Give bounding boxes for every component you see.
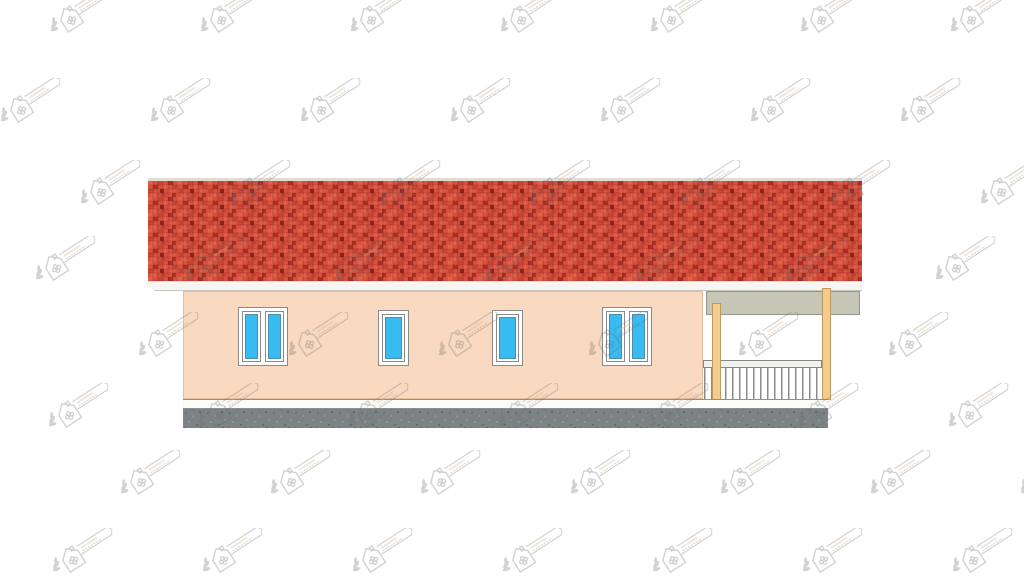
house-leaf-logo-watermark xyxy=(110,450,190,502)
house-leaf-logo-watermark xyxy=(792,528,872,576)
house-leaf-logo-watermark xyxy=(490,0,570,40)
fascia-board xyxy=(148,281,862,291)
porch-ceiling-beam xyxy=(706,291,860,315)
house-leaf-logo-watermark xyxy=(342,528,422,576)
house-leaf-logo-watermark xyxy=(140,78,220,130)
house-leaf-logo-watermark xyxy=(890,78,970,130)
double-window-right xyxy=(602,307,652,366)
house-leaf-logo-watermark xyxy=(25,236,105,288)
house-leaf-logo-watermark xyxy=(260,450,340,502)
window-glass xyxy=(632,314,645,359)
house-leaf-logo-watermark xyxy=(710,450,790,502)
house-leaf-logo-watermark xyxy=(190,0,270,40)
plinth-band xyxy=(183,399,828,409)
house-leaf-logo-watermark xyxy=(340,0,420,40)
house-leaf-logo-watermark xyxy=(970,160,1024,212)
house-leaf-logo-watermark xyxy=(590,78,670,130)
window-glass xyxy=(245,314,258,359)
house-leaf-logo-watermark xyxy=(642,528,722,576)
house-leaf-logo-watermark xyxy=(0,78,70,130)
porch-post-right xyxy=(822,288,831,400)
single-window-1 xyxy=(378,310,409,366)
window-glass xyxy=(609,314,622,359)
window-sash xyxy=(496,314,519,362)
house-leaf-logo-watermark xyxy=(740,78,820,130)
house-leaf-logo-watermark xyxy=(192,528,272,576)
window-glass xyxy=(499,317,516,359)
window-sash xyxy=(382,314,405,362)
foundation-strip xyxy=(183,409,828,428)
porch-post-left xyxy=(712,303,721,400)
window-glass xyxy=(268,314,281,359)
house-leaf-logo-watermark xyxy=(878,312,958,364)
house-leaf-logo-watermark xyxy=(38,383,118,435)
single-window-2 xyxy=(492,310,523,366)
foundation-concrete-texture xyxy=(183,409,828,428)
house-leaf-logo-watermark xyxy=(728,312,808,364)
window-sash xyxy=(265,311,284,362)
house-leaf-logo-watermark xyxy=(42,528,122,576)
house-leaf-logo-watermark xyxy=(70,160,150,212)
house-leaf-logo-watermark xyxy=(938,383,1018,435)
porch-railing-balusters xyxy=(704,368,821,400)
house-leaf-logo-watermark xyxy=(40,0,120,40)
house-leaf-logo-watermark xyxy=(640,0,720,40)
house-leaf-logo-watermark xyxy=(290,78,370,130)
house-leaf-logo-watermark xyxy=(560,450,640,502)
window-sash xyxy=(242,311,261,362)
house-leaf-logo-watermark xyxy=(410,450,490,502)
house-leaf-logo-watermark xyxy=(925,236,1005,288)
elevation-drawing-canvas xyxy=(0,0,1024,576)
window-glass xyxy=(385,317,402,359)
double-window-left xyxy=(238,307,288,366)
house-leaf-logo-watermark xyxy=(790,0,870,40)
house-leaf-logo-watermark xyxy=(860,450,940,502)
red-tiled-roof xyxy=(148,181,862,281)
window-sash xyxy=(629,311,648,362)
house-leaf-logo-watermark xyxy=(1010,450,1024,502)
window-sash xyxy=(606,311,625,362)
roof-brick-texture xyxy=(148,181,862,281)
house-leaf-logo-watermark xyxy=(492,528,572,576)
house-leaf-logo-watermark xyxy=(942,528,1022,576)
house-leaf-logo-watermark xyxy=(940,0,1020,40)
house-leaf-logo-watermark xyxy=(440,78,520,130)
